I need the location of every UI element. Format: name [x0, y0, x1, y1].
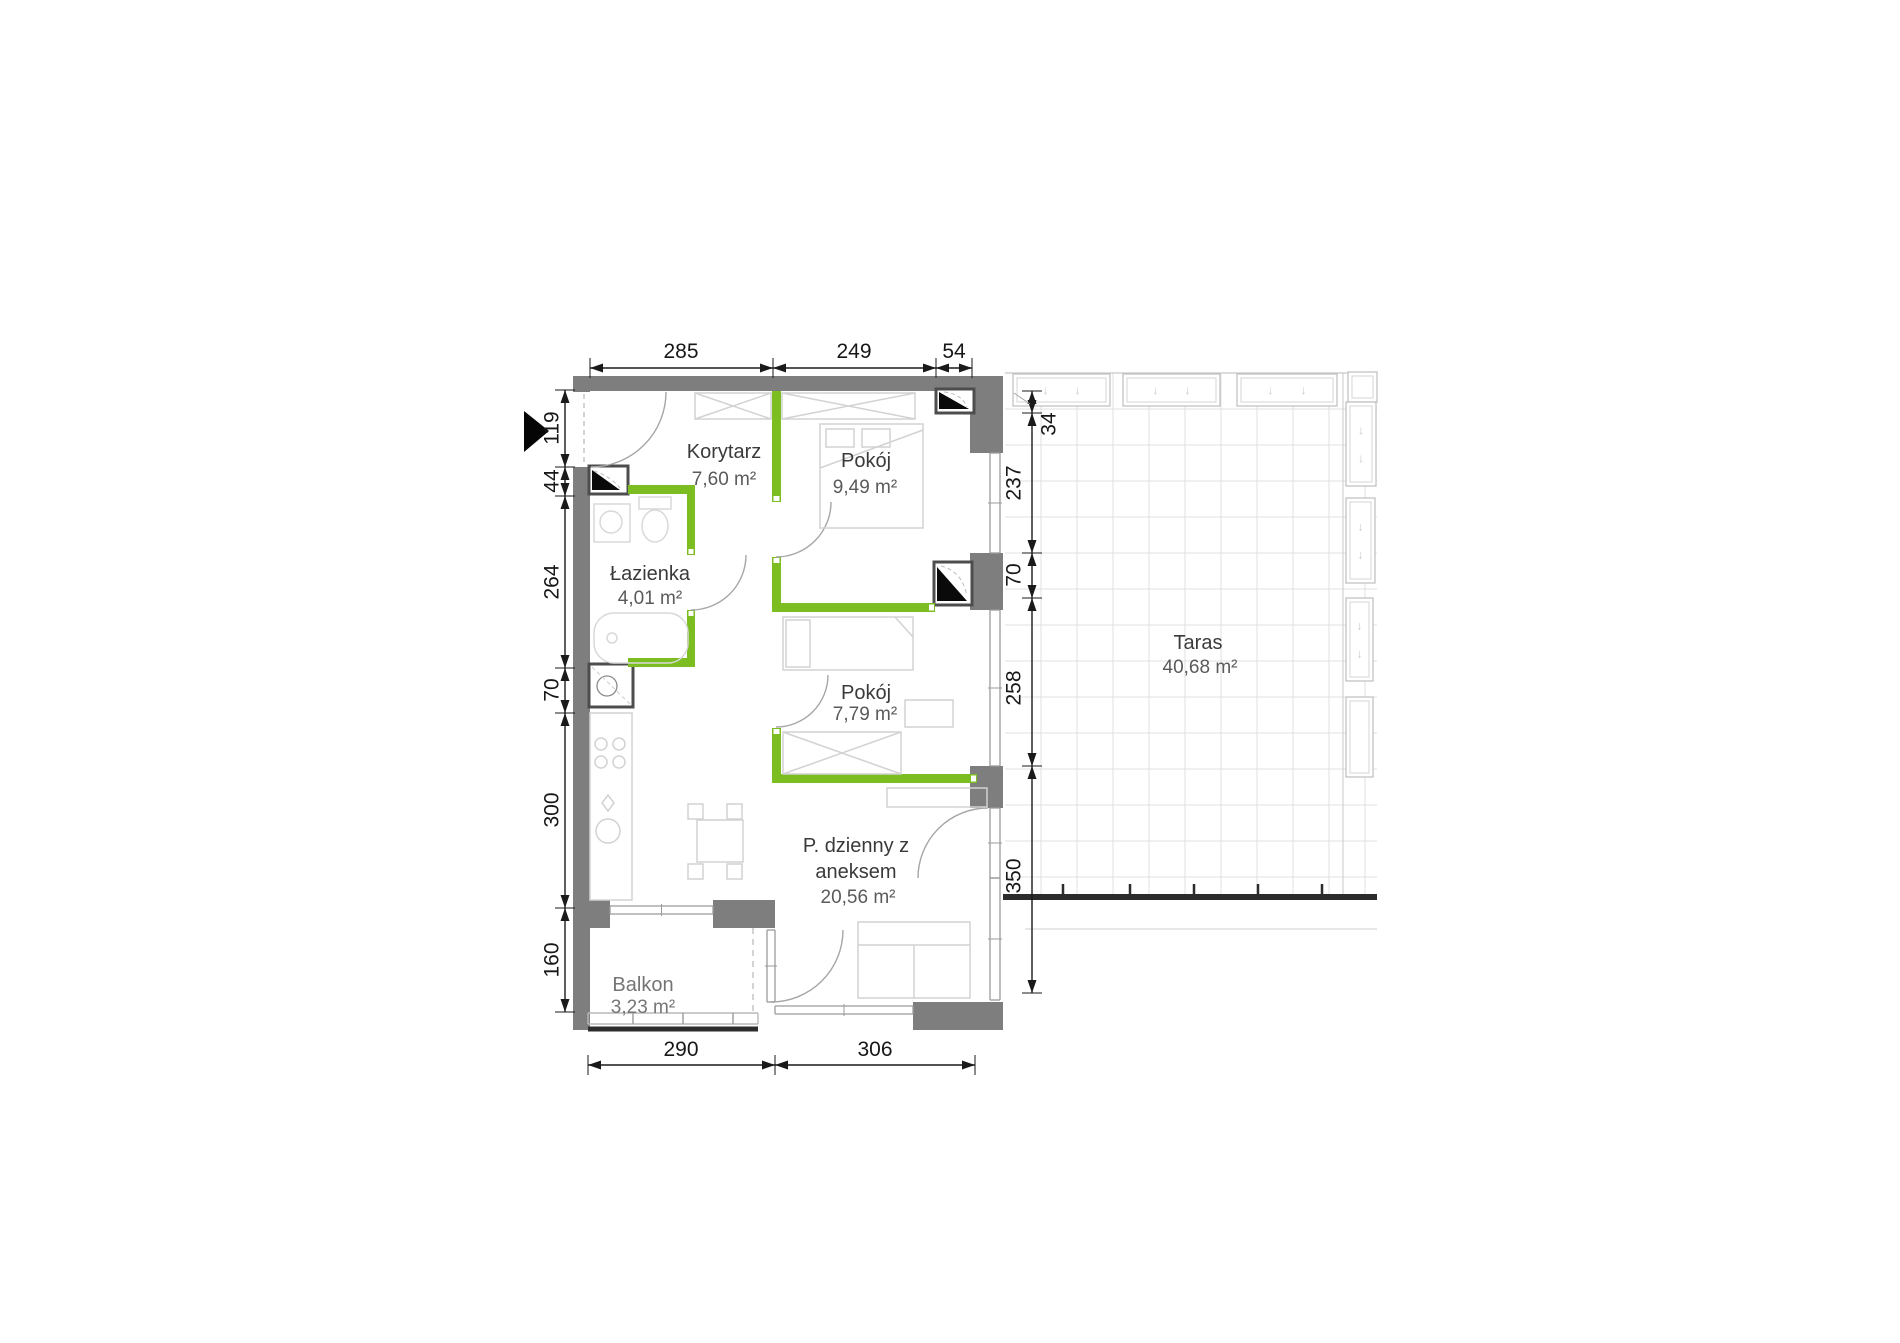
floor-plan-page: ↓↓↓↓↓↓↓↓↓↓↓↓ — [0, 0, 1900, 1343]
door-arc — [591, 392, 666, 467]
room-area-korytarz: 7,60 m² — [692, 469, 756, 490]
door-arc — [691, 555, 746, 610]
room-label-balkon: Balkon — [612, 974, 673, 996]
dim-left-5: 300 — [540, 792, 563, 827]
dim-bottom-2: 306 — [857, 1038, 892, 1061]
dim-left-2: 44 — [540, 469, 563, 493]
dim-top-1: 285 — [663, 340, 698, 363]
room-area-lazienka: 4,01 m² — [618, 588, 682, 609]
partition-walls — [628, 391, 977, 783]
door-arc — [918, 808, 988, 878]
wall — [970, 553, 1003, 610]
room-label-pokoj-1: Pokój — [841, 450, 891, 472]
wall — [573, 467, 590, 1030]
dim-top-3: 54 — [942, 340, 966, 363]
planter: ↓↓ — [1013, 374, 1110, 406]
desk — [905, 700, 953, 727]
toilet — [639, 497, 671, 542]
wardrobe — [783, 732, 901, 774]
installation-shaft — [934, 562, 972, 605]
sofa — [858, 922, 970, 998]
room-label-taras: Taras — [1174, 632, 1223, 654]
dimension-chain — [588, 1055, 975, 1075]
dim-right-5: 350 — [1002, 858, 1025, 893]
partition-wall — [628, 485, 695, 494]
room-area-pokoj-2: 7,79 m² — [833, 704, 897, 725]
door-arc — [771, 930, 843, 1002]
planter-arrow-icon: ↓ — [1357, 646, 1363, 660]
dim-bottom-1: 290 — [663, 1038, 698, 1061]
planter-arrow-icon: ↓ — [1152, 383, 1158, 397]
planter: ↓↓ — [1123, 374, 1220, 406]
dim-right-2: 237 — [1002, 465, 1025, 500]
planter-arrow-icon: ↓ — [1358, 548, 1364, 562]
dimension-chain — [590, 358, 972, 378]
planter-arrow-icon: ↓ — [1358, 423, 1364, 437]
planter: ↓↓ — [1346, 498, 1375, 583]
planter: ↓↓ — [1346, 598, 1373, 681]
floor-plan: ↓↓↓↓↓↓↓↓↓↓↓↓ — [0, 0, 1900, 1343]
installation-shaft — [936, 389, 974, 413]
wall — [573, 376, 590, 392]
installation-shaft — [589, 664, 633, 707]
planter-arrow-icon: ↓ — [1267, 383, 1273, 397]
walls — [573, 376, 1003, 1030]
room-area-pokoj-dzienny: 20,56 m² — [821, 887, 896, 908]
planter-arrow-icon: ↓ — [1042, 383, 1048, 397]
wardrobe — [695, 393, 771, 419]
room-area-balkon: 3,23 m² — [611, 997, 675, 1018]
dim-top-2: 249 — [836, 340, 871, 363]
dining-table — [688, 804, 743, 879]
dim-left-6: 160 — [540, 942, 563, 977]
bed — [783, 617, 913, 670]
bathtub — [594, 613, 688, 663]
door-arc — [776, 502, 831, 557]
washbasin — [594, 504, 630, 542]
room-label-pokoj-2: Pokój — [841, 682, 891, 704]
planter: ↓↓ — [1237, 374, 1337, 406]
partition-wall — [772, 774, 977, 783]
window — [988, 453, 1002, 553]
window — [610, 904, 713, 916]
room-label-pokoj-dzienny-1: P. dzienny z — [803, 835, 909, 857]
dim-left-3: 264 — [540, 564, 563, 599]
terrace-planters: ↓↓↓↓↓↓↓↓↓↓↓↓ — [1013, 372, 1377, 777]
kitchen-counter — [590, 713, 632, 900]
door-arc — [776, 675, 828, 727]
room-area-taras: 40,68 m² — [1163, 657, 1238, 678]
dim-left-1: 119 — [540, 411, 563, 444]
bed — [820, 424, 923, 528]
partition-wall — [772, 603, 935, 612]
terrace-balustrade-posts — [1063, 884, 1322, 894]
room-label-lazienka: Łazienka — [610, 563, 691, 585]
windows — [610, 453, 1002, 1016]
planter-arrow-icon: ↓ — [1301, 383, 1307, 397]
partition-wall — [772, 391, 781, 502]
window — [775, 1004, 913, 1016]
window — [988, 808, 1002, 878]
window — [765, 930, 777, 1002]
wall — [913, 1002, 1003, 1030]
planter: ↓↓ — [1346, 402, 1376, 486]
wall — [573, 900, 610, 928]
window — [988, 878, 1002, 1000]
dim-right-1: 34 — [1037, 412, 1060, 436]
room-label-pokoj-dzienny-2: aneksem — [815, 861, 896, 883]
planter — [1348, 372, 1377, 402]
wardrobe — [782, 393, 915, 419]
planter-arrow-icon: ↓ — [1357, 619, 1363, 633]
dim-left-4: 70 — [540, 678, 563, 701]
window — [988, 610, 1002, 766]
planter — [1346, 697, 1373, 777]
room-label-korytarz: Korytarz — [687, 441, 761, 463]
partition-wall — [687, 485, 695, 555]
furniture — [590, 393, 987, 998]
planter-arrow-icon: ↓ — [1075, 383, 1081, 397]
dim-right-4: 258 — [1002, 670, 1025, 705]
planter-arrow-icon: ↓ — [1185, 383, 1191, 397]
planter-arrow-icon: ↓ — [1358, 451, 1364, 465]
room-area-pokoj-1: 9,49 m² — [833, 477, 897, 498]
planter-arrow-icon: ↓ — [1358, 519, 1364, 533]
installation-shaft — [589, 466, 628, 494]
dim-right-3: 70 — [1002, 563, 1025, 586]
wall — [713, 900, 775, 928]
